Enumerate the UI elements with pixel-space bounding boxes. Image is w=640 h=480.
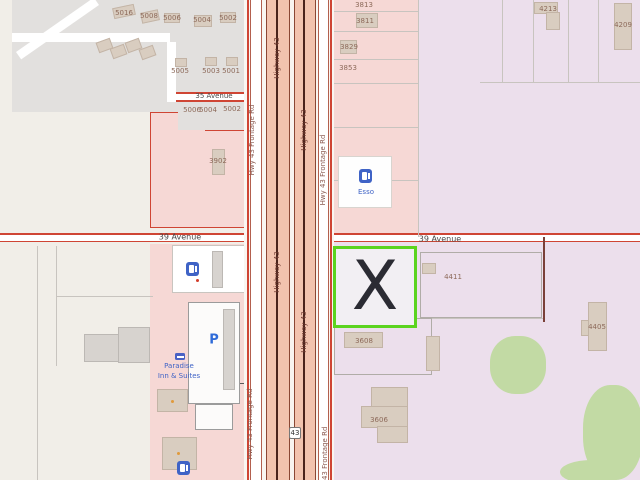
highway-centerline	[303, 0, 305, 480]
parcel-line	[502, 0, 503, 82]
street-label-39-avenue-east: 39 Avenue	[419, 235, 461, 244]
building-3606	[371, 387, 408, 408]
hotel-building	[195, 404, 233, 430]
fuel-hose-glyph	[195, 266, 197, 272]
parcel-line	[56, 246, 57, 366]
fuel-hose-glyph	[186, 465, 188, 471]
street-label-highway-43: Highway 43	[300, 311, 308, 352]
target-marker-box[interactable]: X	[333, 246, 417, 328]
street-label-frontage-east: Hwy 43 Frontage Rd	[321, 427, 329, 480]
parcel-line	[480, 82, 640, 83]
fuel-icon	[359, 169, 372, 183]
grass-patch	[490, 336, 546, 394]
parcel-line	[332, 83, 418, 84]
carwash-building	[212, 251, 223, 288]
housenumber: 5004	[193, 16, 211, 24]
poi-dot	[196, 279, 199, 282]
parcel-line	[332, 11, 418, 12]
hotel-name-line2: Inn & Suites	[158, 372, 200, 380]
building	[175, 58, 187, 67]
hotel-bed-icon	[175, 353, 185, 360]
street-label-highway-43: Highway 43	[300, 109, 308, 150]
parcel-line	[37, 246, 38, 480]
poi-dot	[171, 400, 174, 403]
parcel-line	[57, 296, 153, 297]
building	[226, 57, 238, 66]
housenumber: 5008	[140, 12, 158, 20]
shed	[426, 336, 440, 371]
fence-line	[543, 237, 545, 322]
building	[118, 327, 150, 363]
parcel-line	[332, 127, 418, 128]
bed-mattress-glyph	[177, 356, 184, 358]
fuel-brand-label: Esso	[358, 188, 374, 196]
street-label-highway-43: Highway 43	[273, 37, 281, 78]
street-label-frontage-west: Hwy 43 Frontage Rd	[246, 389, 254, 460]
housenumber: 4213	[539, 5, 557, 13]
housenumber: 3813	[355, 1, 373, 9]
hotel-name-line1: Paradise	[164, 362, 194, 370]
housenumber: 5016	[115, 9, 133, 17]
fuel-icon	[186, 262, 199, 276]
housenumber: 4209	[614, 21, 632, 29]
highway-carriageway-nb	[294, 0, 316, 480]
hotel-wing	[223, 309, 235, 390]
map-canvas[interactable]: 43 X 35 Avenue 39 Avenue 39 Avenue Highw…	[0, 0, 640, 480]
street-label-39-avenue-west: 39 Avenue	[159, 233, 201, 242]
housenumber: 3829	[340, 43, 358, 51]
shield-label: 43	[291, 429, 300, 437]
parcel-line	[418, 0, 419, 237]
parcel-red-line	[205, 130, 247, 131]
housenumber: 3811	[356, 17, 374, 25]
building-4213	[546, 12, 560, 30]
street-label-frontage-east: Hwy 43 Frontage Rd	[319, 135, 327, 206]
housenumber: 3902	[209, 157, 227, 165]
fuel-hose-glyph	[368, 173, 370, 179]
housenumber: 5005	[171, 67, 189, 75]
housenumber: 4405	[588, 323, 606, 331]
fuel-pump-glyph	[189, 265, 194, 273]
frontage-road-east	[318, 0, 329, 480]
street-label-frontage-west: Hwy 43 Frontage Rd	[248, 105, 256, 176]
housenumber: 3853	[339, 64, 357, 72]
building	[205, 57, 217, 66]
housenumber: 5002	[219, 14, 237, 22]
housenumber: 5006	[163, 14, 181, 22]
parcel-line	[332, 59, 418, 60]
target-marker-x: X	[352, 253, 399, 321]
boundary-red-east	[330, 0, 332, 480]
parcel-line	[568, 0, 569, 82]
parking-label: P	[209, 333, 219, 348]
shed	[422, 263, 436, 274]
retail-zone-northeast	[418, 0, 640, 237]
fuel-pump-glyph	[180, 464, 185, 472]
poi-dot	[177, 452, 180, 455]
street-label-35-avenue: 35 Avenue	[195, 92, 232, 100]
building-3606	[377, 426, 408, 443]
grass-patch	[560, 460, 624, 480]
housenumber: 3606	[370, 416, 388, 424]
highway-43-shield: 43	[289, 427, 301, 439]
housenumber: 5002	[223, 105, 241, 113]
parcel-line	[598, 0, 599, 82]
parcel-line	[332, 31, 418, 32]
housenumber: 5001	[222, 67, 240, 75]
housenumber: 4411	[444, 273, 462, 281]
avenue-35-casing	[176, 100, 248, 102]
fuel-pump-glyph	[362, 172, 367, 180]
street-label-highway-43: Highway 43	[273, 251, 281, 292]
parcel-border-4411	[420, 252, 542, 318]
housenumber: 3608	[355, 337, 373, 345]
housenumber: 5004	[199, 106, 217, 114]
fuel-icon	[177, 461, 190, 475]
gas-station-parcel	[172, 245, 248, 293]
housenumber: 5003	[202, 67, 220, 75]
